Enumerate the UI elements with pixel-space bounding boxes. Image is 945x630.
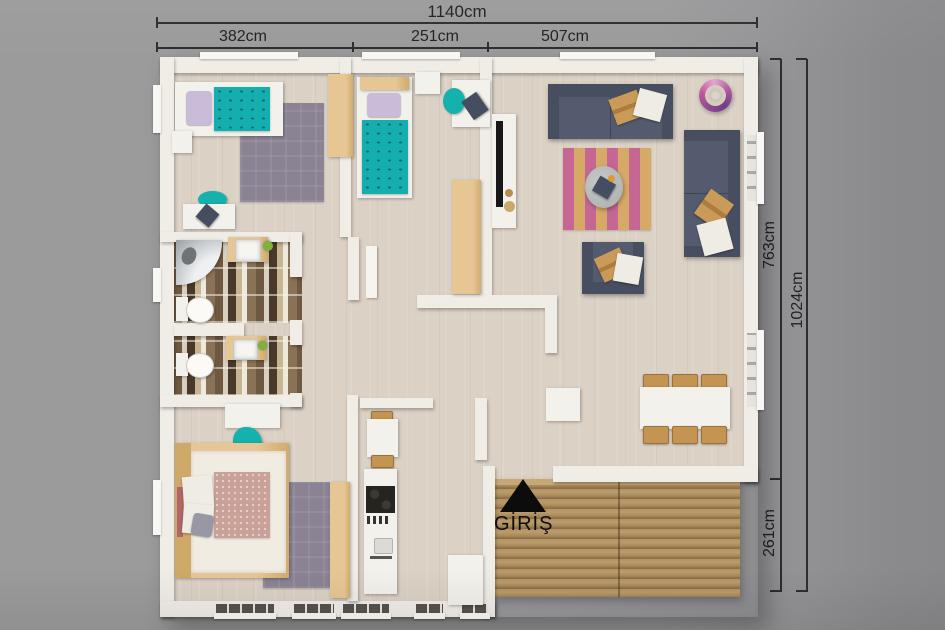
dim-total-width-label: 1140cm [407, 2, 507, 22]
window-sill-bottom-5 [460, 613, 490, 619]
wall-bathroom-right-a [290, 232, 302, 277]
single-bed-1-blanket [214, 87, 270, 131]
single-bed-2-pillow [367, 93, 401, 117]
window-sill-top-1 [200, 52, 298, 59]
dim-tick [796, 58, 807, 60]
window-sill-left-1 [153, 85, 161, 133]
dim-tick [156, 42, 158, 52]
dim-segment-3-label: 507cm [515, 28, 615, 46]
dining-chair-5 [672, 426, 698, 444]
dim-tick [770, 58, 781, 60]
dim-tick [156, 17, 158, 28]
master-pillow-gray [190, 512, 215, 537]
dim-line-top-segments [157, 47, 757, 49]
single-bed-2-headboard [360, 77, 409, 90]
single-bed-1-pillow [186, 91, 212, 125]
wall-entry-hall [545, 308, 557, 353]
up-triangle-icon [500, 479, 546, 512]
dining-chair-4 [643, 426, 669, 444]
tv-screen [496, 121, 503, 207]
cabinet-handle [370, 556, 392, 559]
dim-line-total-width [157, 22, 757, 24]
window-sill-right-2 [757, 330, 764, 410]
dim-segment-2-label: 251cm [385, 28, 485, 46]
nightstand-2 [415, 72, 440, 94]
wall-entry-left [483, 466, 495, 617]
window-sill-top-3 [560, 52, 655, 59]
window-bottom-1 [216, 604, 274, 613]
window-sill-left-2 [153, 268, 161, 302]
tv-decor-vase-1 [505, 189, 513, 197]
cooktop [366, 486, 395, 513]
plant-2 [258, 341, 267, 350]
dim-tick [352, 42, 354, 52]
tv-decor-vase-2 [504, 201, 515, 212]
plant-1 [263, 241, 273, 251]
master-bed-blanket [214, 472, 270, 538]
armchair-armrest-left [582, 242, 593, 294]
wardrobe-bedroom1 [328, 74, 353, 157]
window-bottom-4 [416, 604, 443, 613]
armchair-pillow-white [613, 253, 643, 285]
wall-bedroom2-lower [348, 237, 359, 300]
window-sill-right-1 [757, 132, 764, 204]
kitchen-table [367, 419, 398, 457]
window-sill-bottom-2 [292, 613, 336, 619]
dining-chair-6 [701, 426, 727, 444]
bedroom2-door-leaf [366, 246, 377, 298]
window-sill-bottom-3 [341, 613, 391, 619]
wall-bathroom-divider [174, 323, 244, 336]
wall-kitchen-right [475, 398, 487, 460]
dim-right-261-label: 261cm [761, 493, 779, 573]
floor-plan-canvas: 1140cm 382cm 251cm 507cm 763cm 261cm 102… [0, 0, 945, 630]
wall-bathroom-right-b [290, 320, 302, 345]
window-sill-bottom-1 [214, 613, 276, 619]
sofa-right-armrest-top [684, 130, 740, 141]
dim-right-total-label: 1024cm [789, 255, 807, 345]
wall-kitchen-top [360, 398, 433, 408]
window-bottom-5 [462, 604, 488, 613]
dim-line-right-inner [780, 59, 782, 592]
dim-tick [756, 17, 758, 28]
window-right-1 [747, 135, 756, 201]
kitchen-chair-2 [371, 455, 394, 468]
entrance-label: GİRİŞ [494, 513, 564, 536]
kitchen-sink [374, 538, 393, 554]
dining-table [640, 387, 730, 429]
dim-tick [756, 42, 758, 52]
window-sill-bottom-4 [414, 613, 445, 619]
sofa-top-armrest-right [662, 84, 673, 139]
window-bottom-3 [343, 604, 389, 613]
dim-tick [487, 42, 489, 52]
dim-tick [770, 590, 781, 592]
master-dresser [225, 404, 280, 428]
window-bottom-2 [294, 604, 334, 613]
sofa-top-armrest-left [548, 84, 559, 139]
window-sill-left-3 [153, 480, 161, 535]
wall-top [160, 57, 758, 73]
fridge [448, 555, 483, 605]
nightstand-1 [172, 131, 192, 153]
wardrobe-bedroom2 [452, 180, 481, 294]
single-bed-2-blanket [362, 120, 408, 194]
dim-segment-1-label: 382cm [193, 28, 293, 46]
wall-right [744, 57, 758, 482]
dim-tick [770, 478, 781, 480]
window-right-2 [747, 333, 756, 407]
dim-tick [796, 590, 807, 592]
wall-dining-bottom [553, 466, 758, 482]
coffee-table-bowl [608, 175, 615, 182]
vanity-1-basin [235, 239, 261, 262]
toilet-1-bowl [186, 297, 214, 323]
floor-lamp [699, 79, 732, 112]
dim-right-763-label: 763cm [761, 205, 779, 285]
entry-closet [546, 388, 580, 421]
wall-hall-top [417, 295, 557, 308]
master-wardrobe [330, 482, 350, 598]
window-sill-top-2 [362, 52, 460, 59]
oven-controls [367, 516, 389, 524]
vanity-2-basin [233, 339, 258, 360]
toilet-2-bowl [186, 353, 214, 378]
